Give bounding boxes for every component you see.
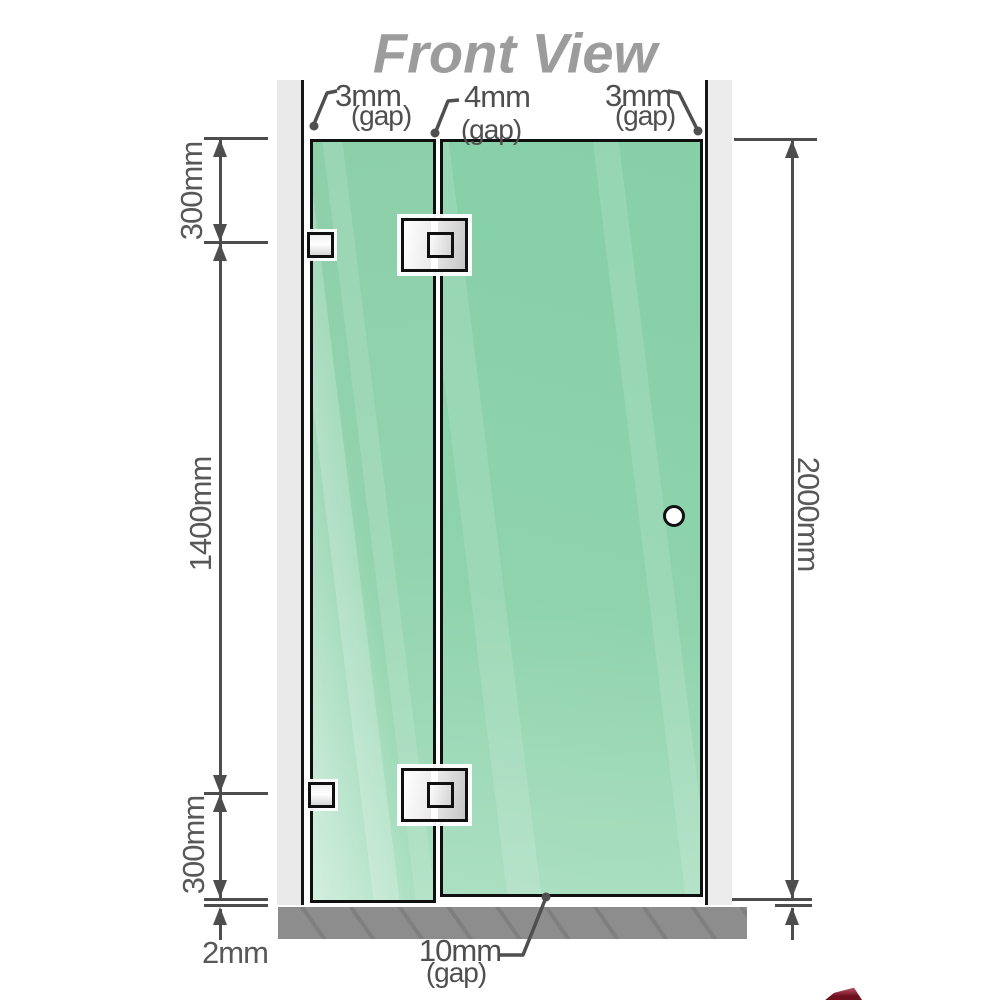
- diagram-canvas: Front View: [0, 0, 1000, 1000]
- dim-label-300-bottom: 300mm: [176, 796, 212, 894]
- dim-line-1400: [219, 242, 222, 793]
- extension-line-glass-bottom: [204, 898, 268, 901]
- extension-line-right-bottom: [732, 898, 812, 901]
- corner-watermark-fragment: [822, 987, 862, 1000]
- gap-label-middle-value: 4mm: [464, 79, 530, 115]
- glass-hinge-bottom: [401, 768, 468, 822]
- floor-base: [278, 907, 747, 939]
- arrowhead: [785, 880, 799, 898]
- arrowhead: [213, 794, 227, 812]
- leader-gap-left: [314, 91, 337, 124]
- arrowhead: [213, 907, 227, 925]
- leader-dot: [694, 127, 703, 136]
- arrowhead: [213, 775, 227, 793]
- page-title: Front View: [373, 21, 657, 86]
- dim-label-1400: 1400mm: [183, 457, 219, 572]
- gap-label-middle-word: (gap): [461, 114, 521, 146]
- arrowhead: [213, 880, 227, 898]
- arrowhead: [785, 140, 799, 158]
- door-knob[interactable]: [663, 505, 685, 527]
- extension-line-right-top: [734, 138, 817, 141]
- right-wall: [705, 80, 732, 905]
- arrowhead: [785, 907, 799, 925]
- wall-bracket-bottom: [308, 782, 335, 808]
- dim-label-2mm: 2mm: [202, 935, 268, 971]
- dim-label-300-top: 300mm: [174, 142, 210, 240]
- gap-label-left-word: (gap): [351, 100, 411, 132]
- arrowhead: [213, 224, 227, 242]
- left-wall: [277, 80, 304, 905]
- hinge-tongue: [427, 782, 454, 808]
- glass-highlight: [443, 142, 700, 894]
- leader-gap-middle: [436, 100, 459, 131]
- glass-hinge-top: [401, 218, 468, 272]
- gap-label-right-word: (gap): [615, 100, 675, 132]
- dim-label-2000: 2000mm: [790, 457, 826, 572]
- leader-dot: [310, 122, 319, 131]
- leader-dot: [431, 129, 440, 138]
- hinge-tongue: [427, 232, 454, 258]
- wall-bracket-top: [307, 232, 334, 258]
- arrowhead: [213, 243, 227, 261]
- arrowhead: [213, 139, 227, 157]
- gap-label-bottom-word: (gap): [426, 957, 486, 989]
